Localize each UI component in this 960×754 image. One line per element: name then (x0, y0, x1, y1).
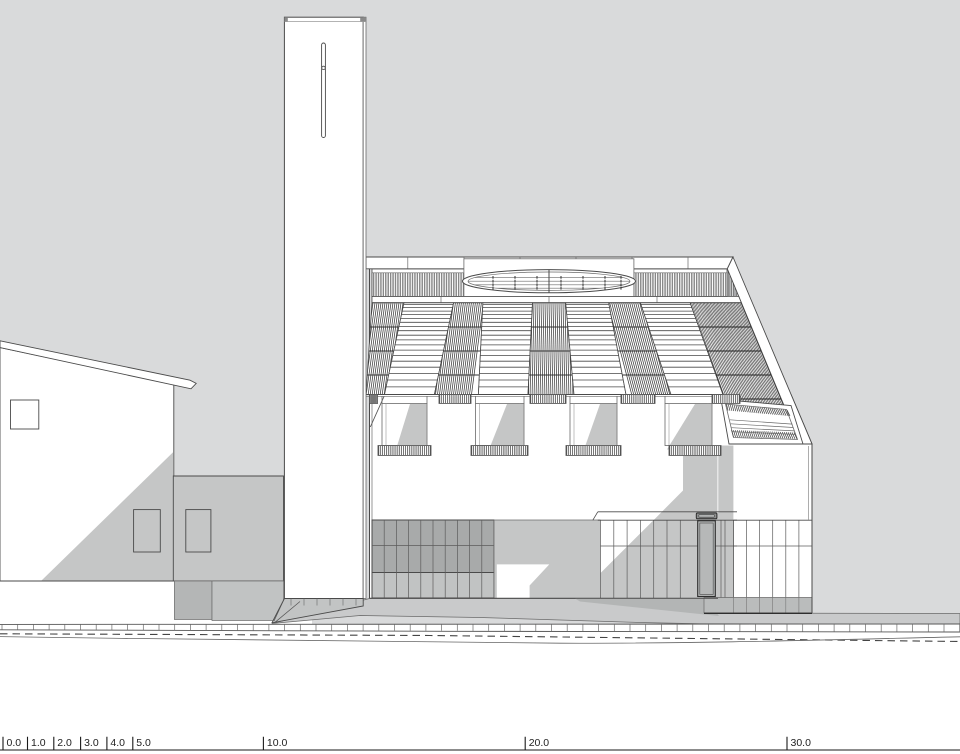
svg-text:3.0: 3.0 (84, 737, 99, 749)
svg-text:1.0: 1.0 (31, 737, 46, 749)
svg-text:20.0: 20.0 (529, 737, 550, 749)
svg-text:2.0: 2.0 (57, 737, 72, 749)
svg-text:10.0: 10.0 (267, 737, 288, 749)
svg-text:4.0: 4.0 (110, 737, 125, 749)
svg-text:5.0: 5.0 (136, 737, 151, 749)
svg-text:0.0: 0.0 (7, 737, 22, 749)
svg-text:30.0: 30.0 (791, 737, 812, 749)
